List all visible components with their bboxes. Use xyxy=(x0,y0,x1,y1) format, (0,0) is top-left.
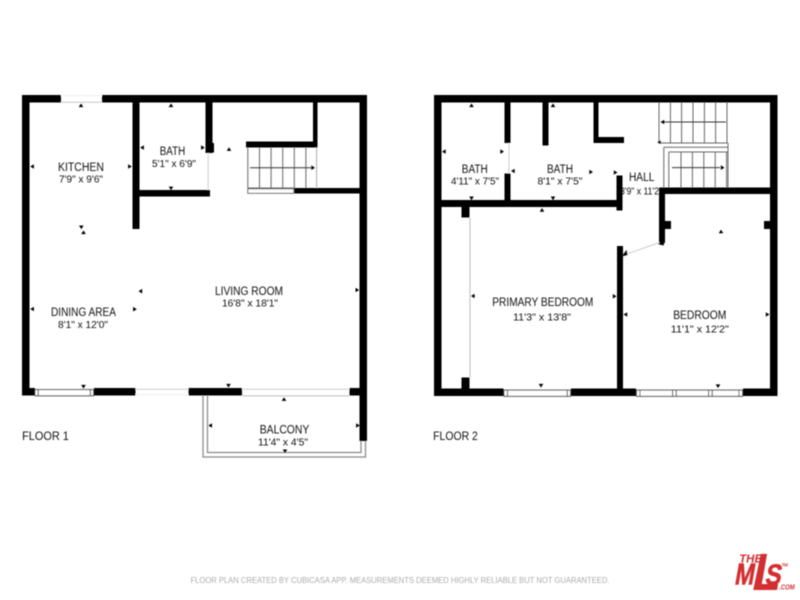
svg-text:11'4" x 4'5": 11'4" x 4'5" xyxy=(258,437,308,448)
svg-text:TM: TM xyxy=(781,563,789,568)
svg-text:BALCONY: BALCONY xyxy=(260,424,310,436)
svg-text:PRIMARY BEDROOM: PRIMARY BEDROOM xyxy=(492,297,593,309)
svg-text:11'1" x 12'2": 11'1" x 12'2" xyxy=(671,324,729,335)
svg-text:4'11" x 7'5": 4'11" x 7'5" xyxy=(451,177,499,188)
svg-text:DINING AREA: DINING AREA xyxy=(51,307,116,319)
svg-text:FLOOR 1: FLOOR 1 xyxy=(22,431,69,443)
svg-text:11'3" x 13'8": 11'3" x 13'8" xyxy=(513,312,571,323)
svg-text:FLOOR PLAN CREATED BY CUBICASA: FLOOR PLAN CREATED BY CUBICASA APP. MEAS… xyxy=(191,575,610,585)
svg-text:BATH: BATH xyxy=(547,164,573,176)
svg-text:KITCHEN: KITCHEN xyxy=(58,162,104,174)
svg-text:BEDROOM: BEDROOM xyxy=(673,310,726,322)
svg-text:8'1" x 12'0": 8'1" x 12'0" xyxy=(58,320,108,331)
svg-text:3'9" x 11'2": 3'9" x 11'2" xyxy=(620,186,662,197)
svg-text:FLOOR 2: FLOOR 2 xyxy=(433,431,478,443)
svg-text:HALL: HALL xyxy=(629,172,655,184)
svg-text:5'1" x 6'9": 5'1" x 6'9" xyxy=(152,159,196,170)
svg-text:.COM: .COM xyxy=(779,583,796,592)
svg-text:BATH: BATH xyxy=(160,146,186,158)
svg-text:8'1" x 7'5": 8'1" x 7'5" xyxy=(538,176,583,187)
svg-text:7'9" x 9'6": 7'9" x 9'6" xyxy=(59,175,103,186)
svg-text:LIVING ROOM: LIVING ROOM xyxy=(215,286,283,298)
svg-text:16'8" x 18'1": 16'8" x 18'1" xyxy=(222,299,278,310)
svg-text:BATH: BATH xyxy=(462,164,488,176)
